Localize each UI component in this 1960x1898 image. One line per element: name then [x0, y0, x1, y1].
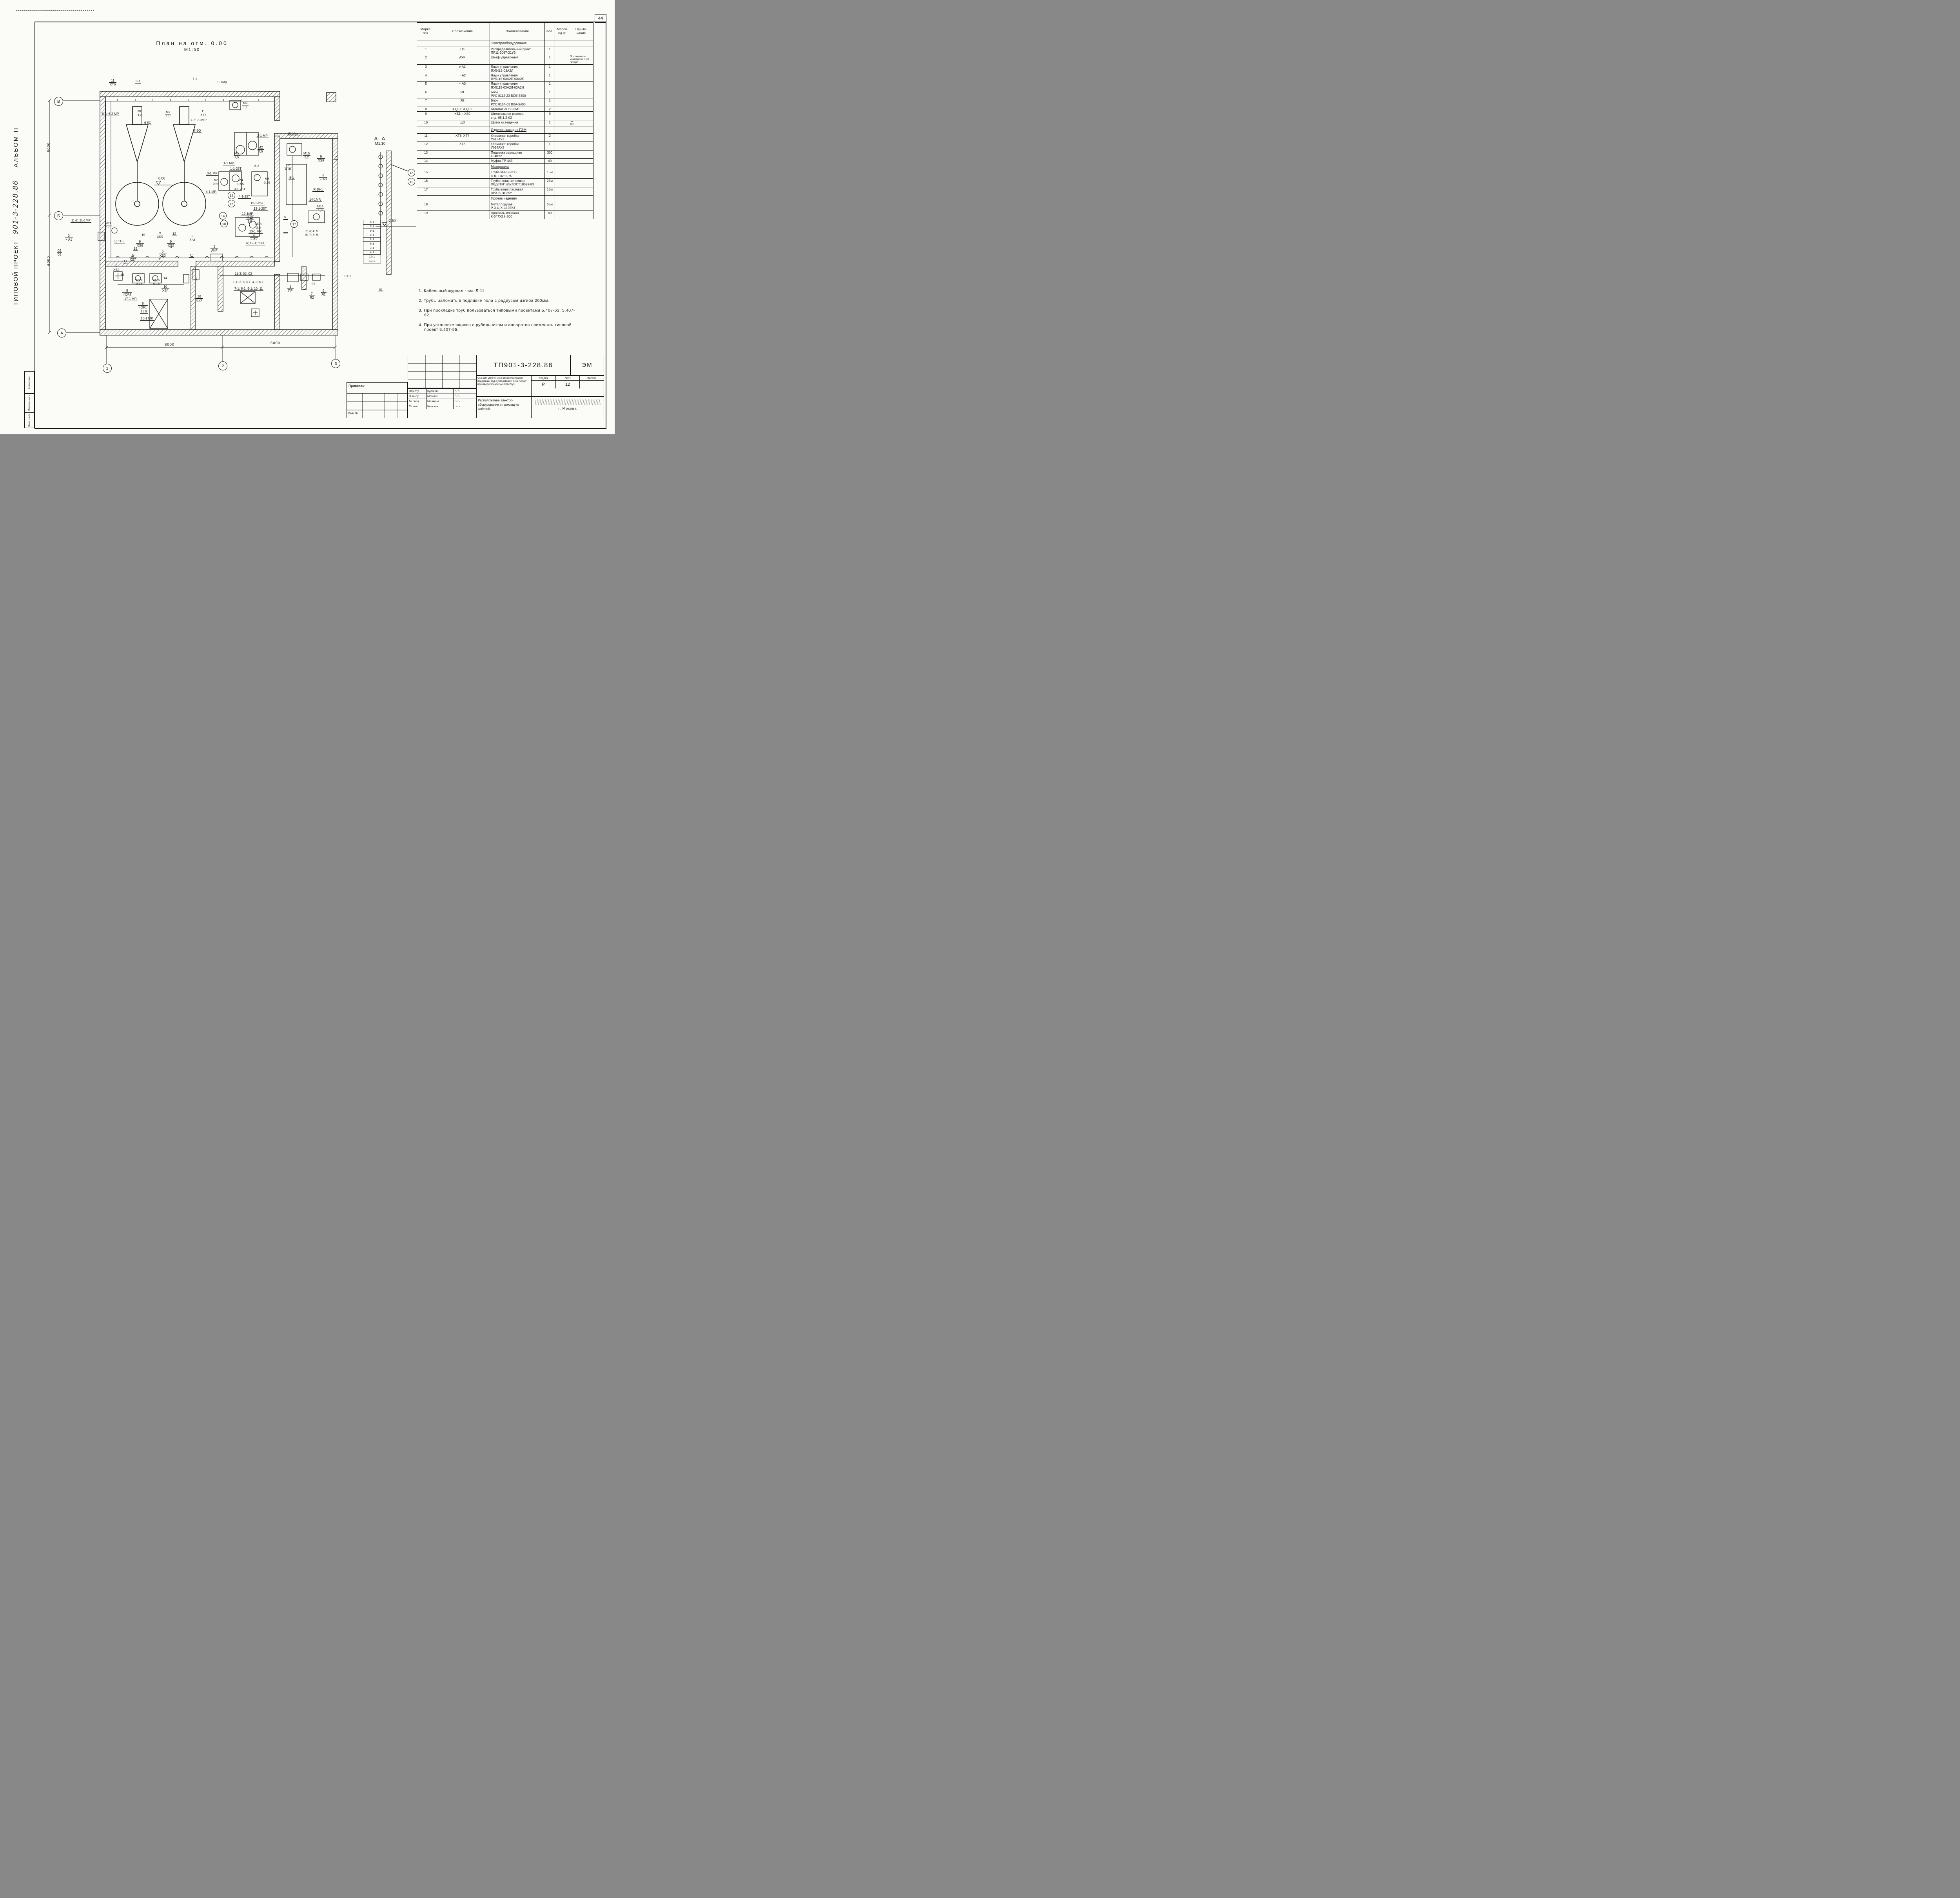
- plan-label: 7-2; 7-3МР: [190, 118, 207, 122]
- plan-label: 10ХS4: [162, 285, 169, 292]
- spec-column-header: Наименование: [490, 23, 545, 40]
- plan-label: М160,18: [152, 278, 160, 286]
- plan-label: М40,55: [237, 178, 245, 186]
- plan-label: М27,5: [258, 146, 264, 153]
- plan-label: 11: [158, 258, 163, 261]
- plan-label: 11ХТ6: [109, 79, 116, 86]
- spec-item-row: 18Металлорукав Р-3-Ц-Х-Ш 25У355м: [417, 202, 593, 210]
- inv-number-label: Инв.№: [348, 412, 358, 415]
- plan-label: 14: [163, 276, 168, 280]
- stage-value: Р: [532, 381, 556, 388]
- note-item: 2. Трубы заложить в подливке пола с ради…: [419, 298, 575, 303]
- note-item: 1. Кабельный журнал - см. Л.11.: [419, 289, 575, 293]
- signature-row: Гл.спец.Малкина〜〜: [408, 399, 476, 404]
- plan-callout-bubble: 15: [228, 192, 235, 199]
- sheet-value: 12: [556, 381, 580, 388]
- plan-label: 12ХТ8: [284, 163, 292, 171]
- dimension-text: 6000: [165, 343, 174, 347]
- axis-bubble: В: [54, 97, 63, 106]
- plan-label: М80,25: [263, 177, 271, 185]
- plan-label: 12-1-25Т: [250, 201, 265, 205]
- plan-label: 6-1: [135, 80, 141, 83]
- spec-section-row: Материалы: [417, 163, 593, 170]
- plan-label: 5= А3: [319, 174, 327, 181]
- signature-scribble: 〜〜: [454, 404, 474, 409]
- plan-label: 8≠QF2: [122, 289, 132, 296]
- sheet-label: Лист: [556, 376, 580, 381]
- spec-item-row: 12ХТ8Клеммная коробка У614АУ21: [417, 142, 593, 151]
- spec-section-row: Прочие изделия: [417, 196, 593, 202]
- title-stage-grid: Стадия Лист Листов Р 12: [531, 376, 604, 397]
- note-item: 3. При прокладке труб пользоваться типов…: [419, 308, 575, 318]
- plan-label: НХТ7: [200, 109, 207, 117]
- plan-label: 10ЩО: [196, 295, 203, 302]
- plan-label: 01-1: [344, 274, 352, 278]
- plan-label: М141,5: [316, 205, 324, 212]
- plan-label: 6Я1: [321, 289, 327, 296]
- dimension-text: 6000: [47, 142, 51, 152]
- plan-label: 5; 11-3: [114, 240, 125, 243]
- spec-item-row: 10ЩОЩиток освещения1см. Л13: [417, 120, 593, 127]
- plan-label: М30,55: [212, 178, 220, 186]
- plan-label: 9ХS4: [113, 264, 120, 272]
- dimension-text: 6000: [47, 256, 51, 266]
- spec-item-row: 16Труба полиэтиленовая ПВД(ПНП)25сГОСТ18…: [417, 178, 593, 187]
- spec-column-header: Марка, поз.: [417, 23, 435, 40]
- plan-label: 15-1Мр.: [287, 132, 300, 136]
- signature-row: Нач.отдКулагин〜〜: [408, 388, 476, 394]
- plan-label: 13: [167, 245, 172, 249]
- section-callout-bubble: 19: [408, 178, 415, 185]
- spec-item-row: 14Муфта ТР-44340: [417, 159, 593, 163]
- spec-column-header: Кол.: [545, 23, 555, 40]
- plan-label: 9-1Мр: [217, 80, 228, 84]
- plan-label: 4: [195, 277, 198, 281]
- signature-row: Н.контр.Мачина〜〜: [408, 394, 476, 399]
- plan-label: 11-2; 11-1МР: [71, 219, 91, 223]
- spec-item-row: 5= А3Ящик управления ЯУ5115-03А2Л-03А2Н1: [417, 82, 593, 90]
- plan-label: 8≠QF1: [138, 302, 148, 309]
- plan-label: 8-2: [254, 164, 260, 168]
- spec-column-header: Приме- чание: [569, 23, 593, 40]
- plan-label: 6-3; 6-2 МР: [101, 112, 120, 116]
- note-item: 4. При установке ящиков с рубильником и …: [419, 323, 575, 332]
- plan-label: М111,3: [104, 221, 112, 229]
- org-city: г. Москва: [532, 406, 604, 410]
- dimension-text: 6000: [270, 341, 280, 345]
- plan-label: 1-1-25Т: [229, 167, 242, 171]
- plan-callout-bubble: 14: [219, 212, 227, 220]
- plan-label: 2-1 МР: [256, 134, 269, 138]
- spec-item-row: 1ПрРаспределительный пункт ПР11-3067-21У…: [417, 47, 593, 55]
- plan-label: А: [283, 215, 287, 219]
- signature-scribble: 〜〜: [454, 389, 474, 394]
- plan-label: 2АЧР: [211, 245, 218, 252]
- spec-item-row: 6Я1Блок РУС 8112-23 ВОЕ-54001: [417, 90, 593, 98]
- sheets-label: Листов: [580, 376, 604, 381]
- spec-column-header: Обозначение: [435, 23, 490, 40]
- plan-label: 1-1; 2-1; 3-1; 4-1; 6-1: [232, 280, 264, 284]
- plan-label: 8-1: [289, 176, 295, 180]
- plan-label: 14-1МР.: [309, 198, 322, 202]
- section-cable-tag: 13-1: [363, 259, 381, 263]
- signature-row: Ст.инж.Чевская〜〜: [408, 404, 476, 409]
- spec-item-row: 7Я2Блок РУС 8154-63 В0А-54001: [417, 98, 593, 107]
- drawing-sheet: 44 ТИПОВОЙ ПРОЕКТ 901-3-228.86 АЛЬБОМ II…: [0, 0, 615, 434]
- plan-label: М71,5: [165, 111, 171, 118]
- plan-label: М133,0: [254, 222, 262, 230]
- plan-label: 18,9: [140, 310, 148, 314]
- plan-label: М91,1: [242, 102, 249, 109]
- title-object: Станция умягчения и обезжелезивания подз…: [476, 376, 531, 397]
- plan-label: 9ХS7: [129, 254, 137, 261]
- plan-label: 18: [120, 273, 125, 277]
- title-change-grid: [408, 355, 476, 388]
- plan-label: 3-1-25Т: [233, 187, 246, 191]
- spec-section-row: Электрооборудование: [417, 40, 593, 47]
- axis-bubble: А: [57, 328, 66, 338]
- spec-item-row: 17Труба винипластовая ПВХ-В-ЭП25У.15м: [417, 187, 593, 196]
- plan-label: 12: [172, 232, 177, 236]
- sheets-value: [580, 381, 604, 388]
- plan-label: 13-1-25Т: [253, 207, 268, 211]
- title-mark: ЭМ: [570, 355, 604, 376]
- plan-label: М170,18: [135, 278, 143, 286]
- plan-label: 4-1 МР.: [205, 190, 217, 194]
- plan-label: 4= А2: [250, 234, 258, 241]
- plan-callout-bubble: 17: [290, 220, 298, 228]
- plan-label: М123,0: [246, 216, 254, 223]
- spec-item-row: 13Подвеска закладная К340У2300: [417, 150, 593, 159]
- plan-label: 13-1 МР.: [249, 230, 263, 234]
- title-sheet-name: Расположение электро-оборудования и прок…: [476, 397, 531, 418]
- plan-label: 3≠ А1: [65, 234, 73, 241]
- section-callout-bubble: 13: [408, 169, 415, 176]
- title-org: г. Москва: [531, 397, 604, 418]
- plan-label: М17,5: [234, 152, 240, 159]
- plan-label: 1ПР: [287, 285, 294, 292]
- spec-table-body: Электрооборудование1ПрРаспределительный …: [417, 40, 593, 219]
- plan-label: 6; 12-1; 13-1: [245, 241, 265, 245]
- spec-item-row: 3≠ А1Ящик управления ЯУ5413-03А2Л1: [417, 65, 593, 73]
- spec-item-row: 2АУРШкаф управления1Поставляется комплек…: [417, 55, 593, 65]
- spec-item-row: 11ХТ6; ХТ7Клеммная коробка У615АУ22: [417, 133, 593, 142]
- plan-label: 0203: [57, 249, 62, 256]
- plan-label: 7-1: [192, 77, 198, 81]
- axis-bubble: 2: [218, 361, 227, 370]
- axis-bubble: Б: [54, 211, 63, 220]
- plan-label: 7-1; 8-1; 9-1; 10; 11: [234, 287, 263, 291]
- plan-label: 2; 3; 4; 56; 7; 8; 9: [305, 229, 319, 237]
- plan-label: 7Я2: [309, 292, 315, 299]
- spec-section-row: Изделия заводов ГЭМ: [417, 127, 593, 133]
- spec-item-row: 4= А2Ящик управления ЯУ5115-03А2П-03А2П1: [417, 73, 593, 82]
- axis-bubble: 3: [331, 359, 340, 368]
- stage-label: Стадия: [532, 376, 556, 381]
- plan-label: 6-5Q: [143, 121, 152, 125]
- plan-label: 3-1 МР: [206, 172, 218, 176]
- plan-label: 7: [334, 156, 338, 160]
- plan-label: 11-3; 02; 03: [234, 272, 253, 276]
- plan-label: Г2: [311, 282, 316, 286]
- plan-label: 17: [123, 259, 128, 263]
- axis-bubble: 1: [103, 364, 112, 373]
- plan-callout-bubble: 16: [228, 200, 235, 207]
- plan-label: 17-1 МР.: [123, 297, 138, 301]
- plan-label: 9ХS3: [159, 250, 167, 258]
- plan-label: 01: [378, 288, 383, 292]
- plan-label: М61,3: [137, 109, 143, 117]
- plan-label: 15: [141, 233, 146, 237]
- org-scribble: [535, 399, 601, 405]
- plan-label: 9ХS9: [317, 155, 325, 162]
- spec-table-header: Марка, поз.ОбозначениеНаименованиеКол.Ма…: [417, 23, 593, 40]
- plan-label: 4-1-25Т: [238, 195, 251, 199]
- plan-callout-bubble: 18: [220, 220, 228, 227]
- title-signatures: Нач.отдКулагин〜〜Н.контр.Мачина〜〜Гл.спец.…: [408, 388, 476, 418]
- title-doc-number: ТП901-3-228.86: [476, 355, 570, 376]
- plan-label: 1-1 МР: [223, 161, 235, 165]
- plan-label: 16: [133, 247, 138, 251]
- spec-item-row: 15Труба М-Р-25х3,2 ГОСТ 3262-7515м: [417, 170, 593, 179]
- spec-item-row: 19Профиль монтажн. К-347У2 ℓ=60060: [417, 210, 593, 219]
- plan-label: 10: [189, 254, 194, 258]
- attach-header: Привязан:: [347, 382, 408, 393]
- plan-label: Я.15-1: [312, 188, 324, 192]
- spec-column-header: Масса ед.кг: [555, 23, 569, 40]
- plan-label: 16-1 МР.: [140, 317, 154, 321]
- notes: 1. Кабельный журнал - см. Л.11.2. Трубы …: [419, 289, 575, 337]
- signature-scribble: 〜〜: [454, 399, 474, 404]
- plan-label: 7-5Q: [193, 129, 201, 133]
- plan-label: 9ХS5: [156, 231, 164, 239]
- spec-table: Марка, поз.ОбозначениеНаименованиеКол.Ма…: [417, 22, 593, 219]
- plan-label: 9ХS1: [189, 234, 196, 242]
- spec-item-row: 8≠ QF1; ≠ QF2Автомат АП50-3МТ2: [417, 107, 593, 112]
- spec-item-row: 9XS1 ÷ XS9Штепсельная розетка инд. 05.1.…: [417, 112, 593, 120]
- section-cable-list: 6-17-19-12-11-18-13-14-112-113-1: [363, 220, 381, 263]
- signature-scribble: 〜〜: [454, 394, 474, 399]
- plan-label: М152,2: [303, 152, 310, 159]
